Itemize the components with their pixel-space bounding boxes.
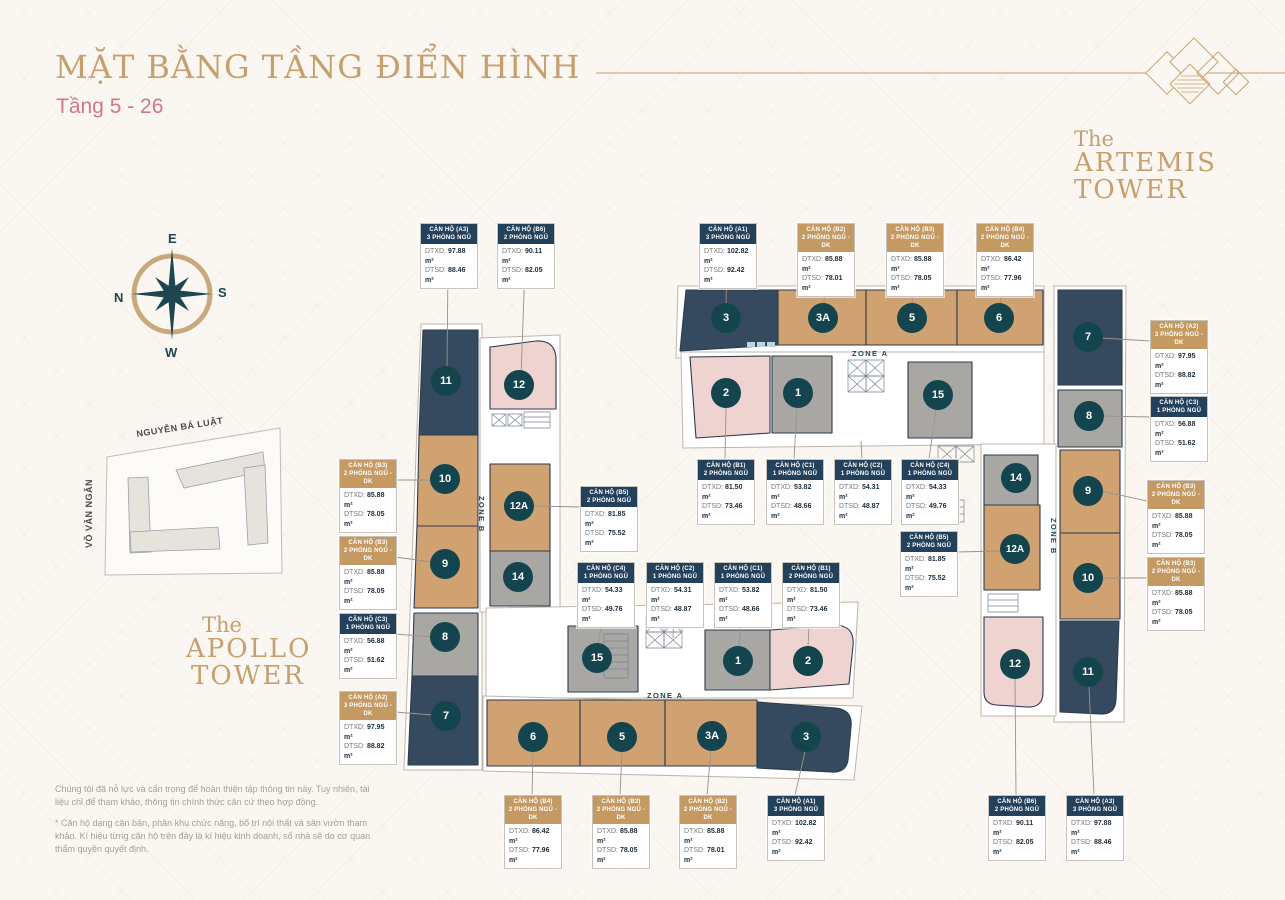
location-map: NGUYỄN BÁ LUẬT VÕ VĂN NGÂN (83, 414, 282, 575)
callout-artemis-b4: CĂN HỘ (B4)2 PHÒNG NGỦ - DK DTXD: 86.42 … (976, 223, 1034, 297)
apollo-unit-badge-2: 2 (793, 646, 823, 676)
callout-header: CĂN HỘ (A2)3 PHÒNG NGỦ - DK (340, 692, 396, 720)
callout-artemis-b1: CĂN HỘ (B1)2 PHÒNG NGỦ DTXD: 81.50 m²DTS… (697, 459, 755, 525)
artemis-unit-badge-12A: 12A (1000, 534, 1030, 564)
callout-header: CĂN HỘ (B6)2 PHÒNG NGỦ (989, 796, 1045, 816)
artemis-unit-badge-15: 15 (923, 380, 953, 410)
callout-header: CĂN HỘ (C1)1 PHÒNG NGỦ (767, 460, 823, 480)
callout-apollo-a2: CĂN HỘ (A2)3 PHÒNG NGỦ - DK DTXD: 97.95 … (339, 691, 397, 765)
callout-apollo-b4: CĂN HỘ (B4)2 PHÒNG NGỦ - DK DTXD: 86.42 … (504, 795, 562, 869)
floorplan-poster: E S W N NGUYỄN BÁ LUẬT VÕ VĂN NGÂN (0, 0, 1285, 900)
callout-header: CĂN HỘ (B3)2 PHÒNG NGỦ - DK (887, 224, 943, 252)
artemis-unit-badge-5: 5 (897, 303, 927, 333)
apollo-unit-badge-15: 15 (582, 643, 612, 673)
compass: E S W N (114, 231, 227, 360)
callout-apollo-b3-left1: CĂN HỘ (B3)2 PHÒNG NGỦ - DK DTXD: 85.88 … (339, 459, 397, 533)
callout-artemis-a1: CĂN HỘ (A1)3 PHÒNG NGỦ DTXD: 102.82 m²DT… (699, 223, 757, 289)
apollo-tower-label: The APOLLO TOWER (186, 614, 311, 691)
callout-artemis-b2: CĂN HỘ (B2)2 PHÒNG NGỦ - DK DTXD: 85.88 … (797, 223, 855, 297)
callout-artemis-c2: CĂN HỘ (C2)1 PHÒNG NGỦ DTXD: 54.31 m²DTS… (834, 459, 892, 525)
artemis-zone-a-label: ZONE A (852, 349, 888, 358)
callout-header: CĂN HỘ (C2)1 PHÒNG NGỦ (835, 460, 891, 480)
callout-header: CĂN HỘ (B3)2 PHÒNG NGỦ - DK (340, 537, 396, 565)
callout-apollo-c3: CĂN HỘ (C3)1 PHÒNG NGỦ DTXD: 56.88 m²DTS… (339, 613, 397, 679)
header-ornament (596, 38, 1285, 104)
callout-apollo-c1: CĂN HỘ (C1)1 PHÒNG NGỦ DTXD: 53.82 m²DTS… (714, 562, 772, 628)
callout-header: CĂN HỘ (B3)2 PHÒNG NGỦ - DK (1148, 481, 1204, 509)
artemis-balcony-tiles (747, 342, 775, 347)
callout-header: CĂN HỘ (B3)2 PHÒNG NGỦ - DK (593, 796, 649, 824)
compass-w: W (165, 345, 178, 360)
callout-artemis-a3: CĂN HỘ (A3)3 PHÒNG NGỦ DTXD: 97.88 m²DTS… (1066, 795, 1124, 861)
callout-header: CĂN HỘ (B5)2 PHÒNG NGỦ (901, 532, 957, 552)
callout-apollo-b2: CĂN HỘ (B2)2 PHÒNG NGỦ - DK DTXD: 85.88 … (679, 795, 737, 869)
compass-e: E (168, 231, 177, 246)
callout-header: CĂN HỘ (C3)1 PHÒNG NGỦ (340, 614, 396, 634)
callout-apollo-b6: CĂN HỘ (B6)2 PHÒNG NGỦ DTXD: 90.11 m²DTS… (497, 223, 555, 289)
apollo-zone-a-label: ZONE A (647, 691, 683, 700)
callout-apollo-a3: CĂN HỘ (A3)3 PHÒNG NGỦ DTXD: 97.88 m²DTS… (420, 223, 478, 289)
apollo-unit-badge-9: 9 (430, 549, 460, 579)
artemis-unit-badge-14: 14 (1001, 463, 1031, 493)
apollo-unit-badge-7: 7 (431, 701, 461, 731)
callout-header: CĂN HỘ (C3)1 PHÒNG NGỦ (1151, 397, 1207, 417)
street-left-label: VÕ VĂN NGÂN (83, 479, 94, 548)
page-subtitle: Tầng 5 - 26 (56, 95, 163, 119)
artemis-unit-badge-9: 9 (1073, 476, 1103, 506)
callout-header: CĂN HỘ (C4)1 PHÒNG NGỦ (578, 563, 634, 583)
artemis-unit-badge-7: 7 (1073, 322, 1103, 352)
artemis-unit-badge-3A: 3A (808, 303, 838, 333)
callout-artemis-a2: CĂN HỘ (A2)3 PHÒNG NGỦ - DK DTXD: 97.95 … (1150, 320, 1208, 394)
apollo-unit-badge-3: 3 (791, 722, 821, 752)
street-top-label: NGUYỄN BÁ LUẬT (136, 414, 224, 439)
callout-header: CĂN HỘ (A3)3 PHÒNG NGỦ (421, 224, 477, 244)
artemis-unit-badge-6: 6 (984, 303, 1014, 333)
compass-n: N (114, 290, 123, 305)
artemis-unit-badge-12: 12 (1000, 649, 1030, 679)
callout-header: CĂN HỘ (B1)2 PHÒNG NGỦ (698, 460, 754, 480)
artemis-unit-badge-10: 10 (1073, 563, 1103, 593)
callout-artemis-c4: CĂN HỘ (C4)1 PHÒNG NGỦ DTXD: 54.33 m²DTS… (901, 459, 959, 525)
artemis-zone-b-label: ZONE B (1049, 518, 1058, 555)
callout-header: CĂN HỘ (A3)3 PHÒNG NGỦ (1067, 796, 1123, 816)
callout-header: CĂN HỘ (B6)2 PHÒNG NGỦ (498, 224, 554, 244)
callout-artemis-c1: CĂN HỘ (C1)1 PHÒNG NGỦ DTXD: 53.82 m²DTS… (766, 459, 824, 525)
callout-header: CĂN HỘ (B3)2 PHÒNG NGỦ - DK (1148, 558, 1204, 586)
callout-apollo-c2: CĂN HỘ (C2)1 PHÒNG NGỦ DTXD: 54.31 m²DTS… (646, 562, 704, 628)
page-title: MẶT BẰNG TẦNG ĐIỂN HÌNH (55, 48, 580, 86)
callout-header: CĂN HỘ (A2)3 PHÒNG NGỦ - DK (1151, 321, 1207, 349)
artemis-unit-badge-11: 11 (1073, 657, 1103, 687)
callout-header: CĂN HỘ (B5)2 PHÒNG NGỦ (581, 487, 637, 507)
callout-apollo-b5: CĂN HỘ (B5)2 PHÒNG NGỦ DTXD: 81.85 m²DTS… (580, 486, 638, 552)
artemis-unit-badge-1: 1 (783, 378, 813, 408)
callout-header: CĂN HỘ (B3)2 PHÒNG NGỦ - DK (340, 460, 396, 488)
apollo-unit-badge-3A: 3A (697, 721, 727, 751)
apollo-unit-badge-8: 8 (430, 622, 460, 652)
map-artemis-wing (244, 465, 268, 545)
artemis-unit-badge-2: 2 (711, 378, 741, 408)
compass-s: S (218, 285, 227, 300)
apollo-unit-badge-10: 10 (430, 464, 460, 494)
apollo-zone-b-label: ZONE B (477, 496, 486, 533)
compass-star (132, 248, 212, 340)
callout-artemis-c3: CĂN HỘ (C3)1 PHÒNG NGỦ DTXD: 56.88 m²DTS… (1150, 396, 1208, 462)
callout-header: CĂN HỘ (A1)3 PHÒNG NGỦ (700, 224, 756, 244)
disclaimer-p2: * Căn hộ dạng căn bản, phân khu chức năn… (55, 817, 385, 856)
apollo-unit-badge-5: 5 (607, 722, 637, 752)
callout-artemis-b6: CĂN HỘ (B6)2 PHÒNG NGỦ DTXD: 90.11 m²DTS… (988, 795, 1046, 861)
callout-artemis-b3-top: CĂN HỘ (B3)2 PHÒNG NGỦ - DK DTXD: 85.88 … (886, 223, 944, 297)
callout-header: CĂN HỘ (C1)1 PHÒNG NGỦ (715, 563, 771, 583)
callout-header: CĂN HỘ (B4)2 PHÒNG NGỦ - DK (505, 796, 561, 824)
callout-apollo-b1: CĂN HỘ (B1)2 PHÒNG NGỦ DTXD: 81.50 m²DTS… (782, 562, 840, 628)
callout-header: CĂN HỘ (C4)1 PHÒNG NGỦ (902, 460, 958, 480)
disclaimer: Chúng tôi đã nỗ lực và cẩn trọng để hoàn… (55, 783, 385, 864)
callout-artemis-b3-right2: CĂN HỘ (B3)2 PHÒNG NGỦ - DK DTXD: 85.88 … (1147, 557, 1205, 631)
callout-header: CĂN HỘ (A1)3 PHÒNG NGỦ (768, 796, 824, 816)
callout-artemis-b3-right1: CĂN HỘ (B3)2 PHÒNG NGỦ - DK DTXD: 85.88 … (1147, 480, 1205, 554)
apollo-unit-badge-12: 12 (504, 370, 534, 400)
callout-header: CĂN HỘ (B2)2 PHÒNG NGỦ - DK (680, 796, 736, 824)
apollo-unit-badge-1: 1 (723, 646, 753, 676)
apollo-unit-badge-12A: 12A (504, 491, 534, 521)
callout-apollo-b3-bottom: CĂN HỘ (B3)2 PHÒNG NGỦ - DK DTXD: 85.88 … (592, 795, 650, 869)
callout-header: CĂN HỘ (C2)1 PHÒNG NGỦ (647, 563, 703, 583)
artemis-unit-badge-3: 3 (711, 303, 741, 333)
callout-apollo-a1: CĂN HỘ (A1)3 PHÒNG NGỦ DTXD: 102.82 m²DT… (767, 795, 825, 861)
disclaimer-p1: Chúng tôi đã nỗ lực và cẩn trọng để hoàn… (55, 783, 385, 809)
apollo-unit-badge-11: 11 (431, 366, 461, 396)
callout-header: CĂN HỘ (B4)2 PHÒNG NGỦ - DK (977, 224, 1033, 252)
apollo-unit-badge-6: 6 (518, 722, 548, 752)
callout-header: CĂN HỘ (B2)2 PHÒNG NGỦ - DK (798, 224, 854, 252)
callout-apollo-c4: CĂN HỘ (C4)1 PHÒNG NGỦ DTXD: 54.33 m²DTS… (577, 562, 635, 628)
artemis-tower-label: The ARTEMIS TOWER (1074, 128, 1217, 205)
callout-apollo-b3-left2: CĂN HỘ (B3)2 PHÒNG NGỦ - DK DTXD: 85.88 … (339, 536, 397, 610)
callout-artemis-b5: CĂN HỘ (B5)2 PHÒNG NGỦ DTXD: 81.85 m²DTS… (900, 531, 958, 597)
callout-header: CĂN HỘ (B1)2 PHÒNG NGỦ (783, 563, 839, 583)
apollo-unit-badge-14: 14 (503, 562, 533, 592)
artemis-unit-badge-8: 8 (1074, 401, 1104, 431)
